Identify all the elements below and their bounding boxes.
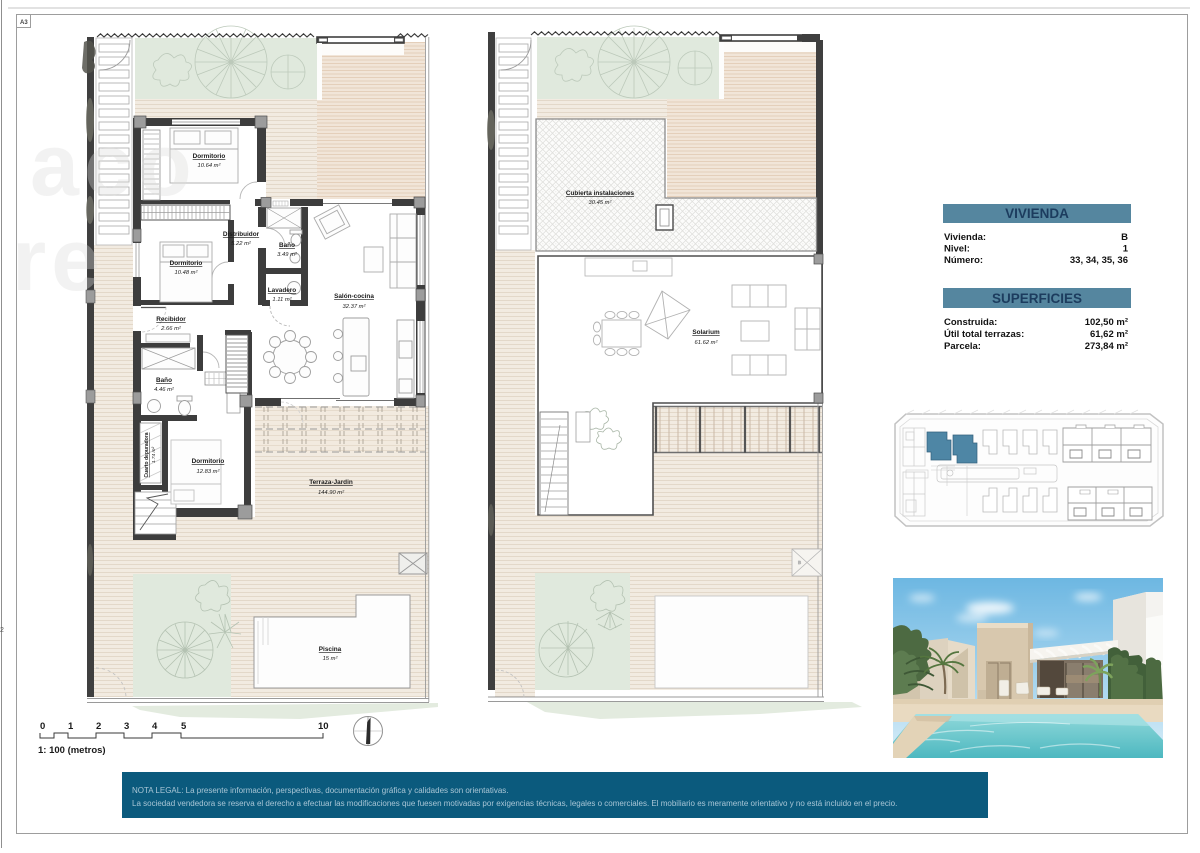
svg-text:VIVIENDA: VIVIENDA (1005, 206, 1069, 221)
svg-text:Cubierta instalaciones: Cubierta instalaciones (566, 190, 635, 197)
svg-text:Construida:: Construida: (944, 317, 997, 328)
svg-text:30.45 m²: 30.45 m² (589, 200, 613, 206)
svg-text:aco: aco (30, 115, 197, 214)
svg-text:2: 2 (0, 627, 4, 634)
svg-text:61,62 m²: 61,62 m² (1090, 329, 1128, 340)
svg-text:102,50 m²: 102,50 m² (1085, 317, 1128, 328)
svg-text:SUPERFICIES: SUPERFICIES (992, 291, 1082, 306)
svg-text:5.22 m²: 5.22 m² (231, 241, 252, 247)
svg-text:15 m²: 15 m² (323, 656, 339, 662)
svg-text:0: 0 (40, 721, 45, 732)
svg-text:Cuarto depuradora: Cuarto depuradora (144, 432, 150, 477)
svg-text:144.90 m²: 144.90 m² (318, 490, 345, 496)
svg-text:33, 34, 35, 36: 33, 34, 35, 36 (1070, 255, 1128, 266)
svg-text:Salón-cocina: Salón-cocina (334, 293, 374, 300)
svg-text:B: B (798, 560, 801, 565)
svg-text:Piscina: Piscina (319, 646, 342, 653)
svg-text:Dormitorio: Dormitorio (193, 153, 226, 160)
svg-text:10: 10 (318, 721, 329, 732)
svg-text:2: 2 (96, 721, 101, 732)
svg-text:1.74 m²: 1.74 m² (151, 446, 157, 463)
svg-text:Terraza-Jardin: Terraza-Jardin (309, 479, 353, 486)
svg-text:Solarium: Solarium (692, 329, 720, 336)
svg-text:10.64 m²: 10.64 m² (198, 163, 222, 169)
svg-text:1: 1 (1123, 244, 1129, 255)
svg-text:La sociedad vendedora se reser: La sociedad vendedora se reserva el dere… (132, 799, 897, 808)
svg-text:4: 4 (152, 721, 158, 732)
svg-text:Útil total terrazas:: Útil total terrazas: (944, 328, 1024, 340)
svg-text:12.83 m²: 12.83 m² (197, 469, 221, 475)
svg-text:3: 3 (124, 721, 129, 732)
svg-text:Distribuidor: Distribuidor (223, 231, 260, 238)
svg-text:Número:: Número: (944, 255, 983, 266)
svg-text:1: 100 (metros): 1: 100 (metros) (38, 745, 106, 756)
svg-text:Baño: Baño (156, 377, 172, 384)
svg-text:1: 1 (68, 721, 74, 732)
svg-text:10.48 m²: 10.48 m² (175, 270, 199, 276)
svg-text:2.66 m²: 2.66 m² (160, 326, 182, 332)
svg-text:5: 5 (181, 721, 187, 732)
svg-text:Dormitorio: Dormitorio (192, 458, 225, 465)
svg-text:Nivel:: Nivel: (944, 244, 970, 255)
svg-text:NOTA LEGAL: La presente inform: NOTA LEGAL: La presente información, per… (132, 786, 509, 795)
svg-text:Dormitorio: Dormitorio (170, 260, 203, 267)
svg-text:B: B (1121, 232, 1128, 243)
svg-text:4.46 m²: 4.46 m² (154, 387, 175, 393)
svg-text:3.49 m²: 3.49 m² (277, 252, 298, 258)
svg-text:Recibidor: Recibidor (156, 316, 186, 323)
svg-text:Baño: Baño (279, 242, 295, 249)
svg-text:273,84 m²: 273,84 m² (1085, 341, 1128, 352)
svg-text:re: re (12, 210, 105, 309)
svg-text:1.11 m²: 1.11 m² (272, 297, 292, 303)
svg-text:A3: A3 (20, 20, 28, 26)
svg-text:Lavadero: Lavadero (268, 287, 297, 294)
svg-text:61.62 m²: 61.62 m² (695, 340, 719, 346)
svg-text:32.37 m²: 32.37 m² (343, 304, 367, 310)
svg-text:Vivienda:: Vivienda: (944, 232, 986, 243)
svg-text:Parcela:: Parcela: (944, 341, 981, 352)
